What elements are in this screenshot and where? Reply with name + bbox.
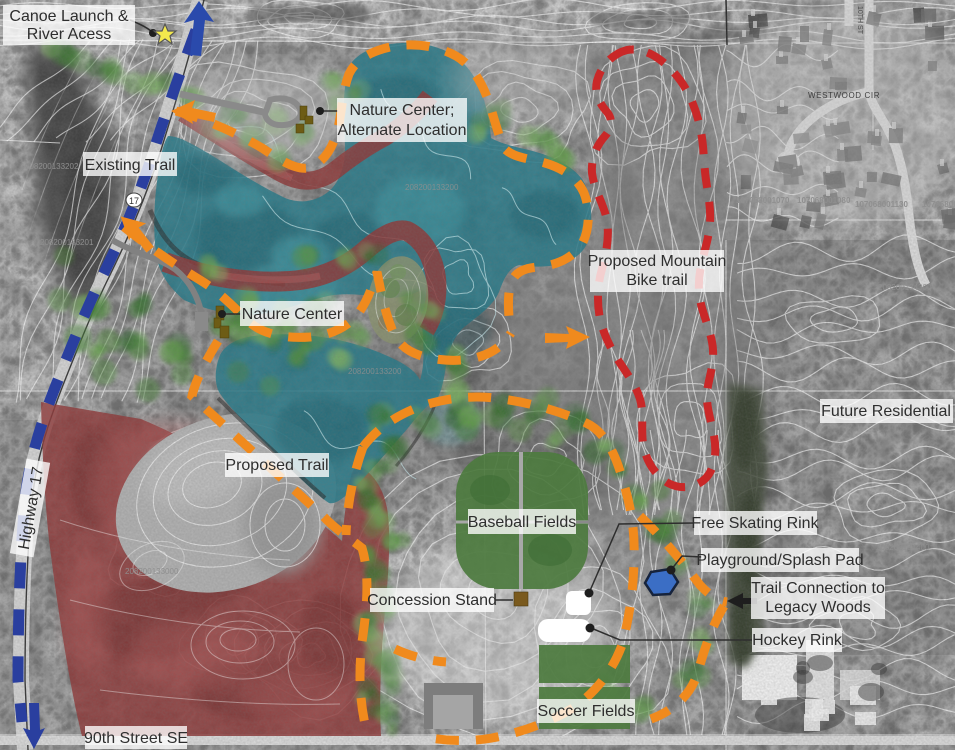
svg-text:River Acess: River Acess [27,26,111,43]
svg-text:17: 17 [129,196,139,206]
svg-text:Alternate Location: Alternate Location [338,122,467,139]
svg-text:107068001070: 107068001070 [736,196,790,205]
svg-text:Proposed Mountain: Proposed Mountain [588,253,727,270]
svg-text:Proposed Trail: Proposed Trail [225,457,328,474]
svg-text:WESTWOOD CIR: WESTWOOD CIR [808,91,880,100]
svg-text:208200133000: 208200133000 [125,567,179,576]
svg-text:Future Residential: Future Residential [821,403,951,420]
svg-text:Baseball Fields: Baseball Fields [468,514,577,531]
svg-text:Legacy Woods: Legacy Woods [765,599,871,616]
svg-text:Nature Center: Nature Center [242,306,343,323]
svg-text:Concession Stand: Concession Stand [367,592,497,609]
svg-text:Playground/Splash Pad: Playground/Splash Pad [696,552,863,569]
svg-text:90th Street SE: 90th Street SE [84,730,188,747]
svg-text:Existing Trail: Existing Trail [85,157,176,174]
svg-text:208200134300: 208200134300 [878,283,932,292]
svg-text:10706800: 10706800 [922,200,955,209]
svg-text:208200133200: 208200133200 [405,183,459,192]
svg-text:Bike trail: Bike trail [626,272,687,289]
svg-text:107068001080: 107068001080 [797,196,851,205]
svg-text:Hockey Rink: Hockey Rink [752,632,843,649]
svg-text:Canoe Launch &: Canoe Launch & [9,8,129,25]
svg-text:208200133202: 208200133202 [25,162,79,171]
svg-text:Free Skating Rink: Free Skating Rink [691,515,819,532]
svg-text:Trail Connection to: Trail Connection to [751,580,885,597]
svg-text:Soccer Fields: Soccer Fields [538,703,635,720]
svg-text:107068001130: 107068001130 [855,200,909,209]
svg-text:208200133201: 208200133201 [40,238,94,247]
svg-text:Nature Center;: Nature Center; [350,102,455,119]
svg-text:208200133200: 208200133200 [348,367,402,376]
svg-text:208200134400: 208200134400 [876,543,930,552]
svg-text:10TH ST: 10TH ST [856,6,863,35]
